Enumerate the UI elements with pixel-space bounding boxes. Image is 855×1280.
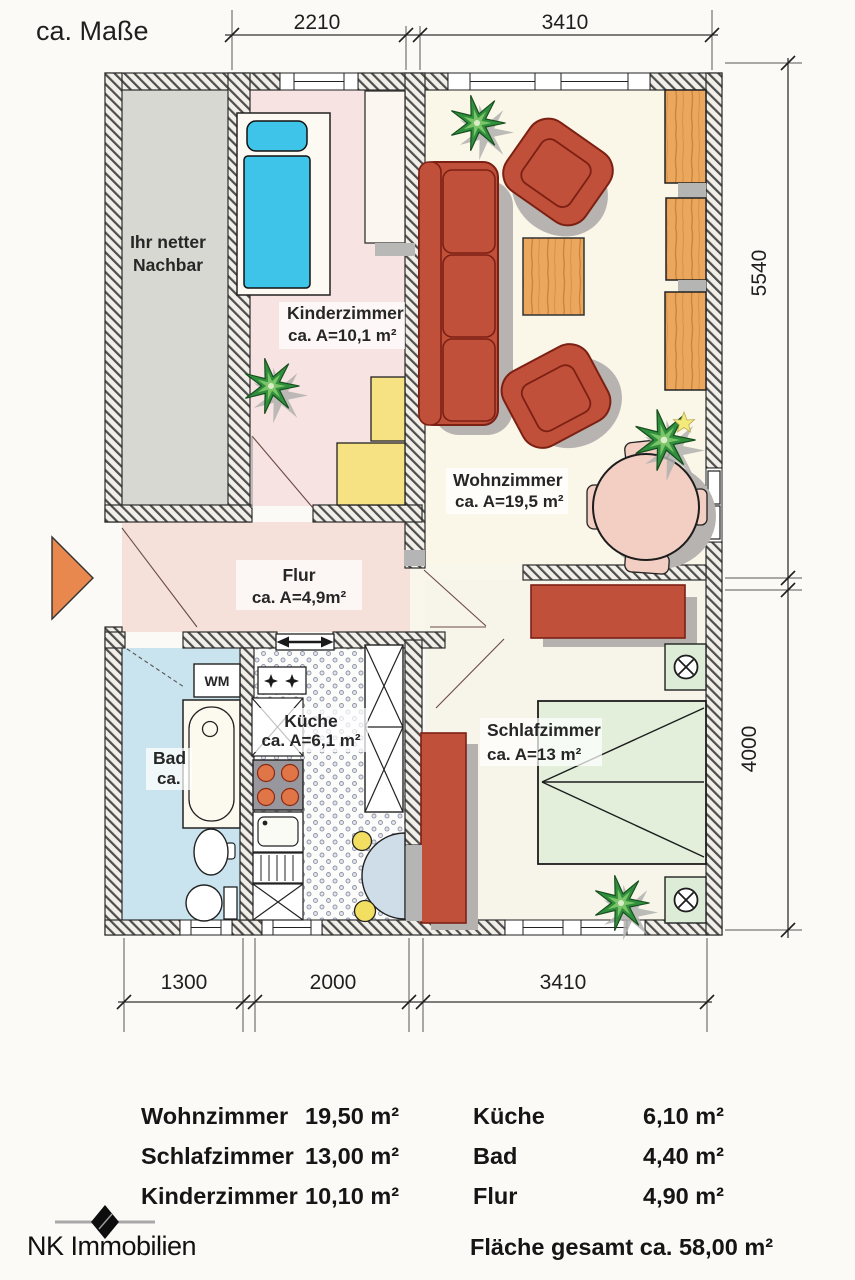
vent-box <box>258 667 306 694</box>
lamp-icon <box>675 656 698 679</box>
neighbor-room-floor <box>122 90 228 506</box>
bad-label: Bad <box>153 748 186 768</box>
door-knob <box>353 832 372 851</box>
floor-plan-drawing: 2210 3410 5540 4000 1300 2000 3410 Ihr n… <box>0 0 855 1060</box>
wardrobe <box>421 733 466 923</box>
room-name: Wohnzimmer <box>141 1096 305 1136</box>
sink <box>194 829 228 875</box>
sofa-cushion <box>443 170 495 253</box>
dim-bottom-3: 3410 <box>540 971 587 994</box>
wall-segment <box>183 632 277 648</box>
entry-door-opening <box>105 522 122 627</box>
window-kueche <box>262 920 322 935</box>
kueche-area: ca. A=6,1 m² <box>261 731 360 750</box>
sideboard <box>531 585 685 638</box>
toilet-tank <box>224 887 237 919</box>
bathtub-drain <box>203 722 218 737</box>
dim-right-1: 5540 <box>748 250 771 297</box>
dining-table <box>593 454 699 560</box>
wall-segment <box>523 565 706 580</box>
wall-shadow <box>375 243 415 256</box>
neighbor-label-line2: Nachbar <box>133 255 203 275</box>
brand-name: NK Immobilien <box>27 1231 196 1262</box>
room-name: Kinderzimmer <box>141 1176 305 1216</box>
room-area: 4,40 m² <box>643 1143 724 1169</box>
shelf-connector <box>678 183 706 198</box>
schlafzimmer-area: ca. A=13 m² <box>487 745 582 764</box>
bad-area: ca. <box>157 769 181 788</box>
schlafzimmer-label: Schlafzimmer <box>487 720 601 740</box>
yellow-cabinet <box>337 443 405 505</box>
child-bed-mattress <box>244 156 310 288</box>
wardrobe <box>365 91 405 243</box>
wall-segment <box>105 627 122 935</box>
shelf-unit <box>666 198 706 280</box>
shelf-connector <box>678 280 706 292</box>
dim-top-1: 2210 <box>294 11 341 34</box>
wohnzimmer-area: ca. A=19,5 m² <box>455 492 564 511</box>
window-kinderzimmer <box>280 73 358 90</box>
wall-segment <box>105 73 122 522</box>
area-table-left: Wohnzimmer19,50 m² Schlafzimmer13,00 m² … <box>141 1096 399 1216</box>
table-row: Schlafzimmer13,00 m² <box>141 1136 399 1176</box>
wall-segment <box>105 632 125 648</box>
room-name: Küche <box>473 1096 643 1136</box>
shelf-unit <box>665 292 706 390</box>
wall-shadow <box>406 845 422 921</box>
room-name: Bad <box>473 1136 643 1176</box>
floor-plan-page: ca. Maße <box>0 0 855 1280</box>
child-bed-pillow <box>247 121 307 151</box>
flur-label: Flur <box>282 565 315 585</box>
washing-machine-label: WM <box>205 673 230 689</box>
room-area: 10,10 m² <box>305 1183 399 1209</box>
window-wohnzimmer <box>448 73 650 90</box>
dim-top-2: 3410 <box>542 11 589 34</box>
neighbor-label-line1: Ihr netter <box>130 232 206 252</box>
wall-segment <box>706 542 722 935</box>
wall-segment <box>105 920 180 935</box>
wall-segment <box>105 505 252 522</box>
wall-segment <box>358 73 448 90</box>
table-row: Wohnzimmer19,50 m² <box>141 1096 399 1136</box>
wall-segment <box>232 920 262 935</box>
sofa-back <box>419 162 441 425</box>
sofa-cushion <box>443 255 495 337</box>
table-row: Bad4,40 m² <box>473 1136 724 1176</box>
room-name: Flur <box>473 1176 643 1216</box>
table-row: Flur4,90 m² <box>473 1176 724 1216</box>
room-area: 6,10 m² <box>643 1103 724 1129</box>
sofa-cushion <box>443 339 495 421</box>
room-area: 4,90 m² <box>643 1183 724 1209</box>
wall-segment <box>706 73 722 468</box>
kinderzimmer-label: Kinderzimmer <box>287 303 404 323</box>
dish-rack <box>253 853 303 883</box>
wall-segment <box>405 640 422 845</box>
wall-segment <box>105 73 280 90</box>
kueche-label: Küche <box>284 711 338 731</box>
shelf-unit <box>665 90 706 183</box>
total-area: Fläche gesamt ca. 58,00 m² <box>470 1234 773 1261</box>
entry-arrow-icon <box>52 537 93 619</box>
flur-area: ca. A=4,9m² <box>252 588 347 607</box>
wall-shadow <box>404 550 425 566</box>
lamp-icon <box>675 889 698 912</box>
wall-segment <box>313 505 422 522</box>
table-row: Kinderzimmer10,10 m² <box>141 1176 399 1216</box>
yellow-cabinet <box>371 377 405 441</box>
sink-faucet <box>263 821 268 826</box>
kinderzimmer-area: ca. A=10,1 m² <box>288 326 397 345</box>
area-table-right: Küche6,10 m² Bad4,40 m² Flur4,90 m² <box>473 1096 724 1216</box>
coffee-table <box>523 238 584 315</box>
room-area: 19,50 m² <box>305 1103 399 1129</box>
tall-cabinet <box>365 645 403 812</box>
table-row: Küche6,10 m² <box>473 1096 724 1136</box>
dim-bottom-2: 2000 <box>310 971 357 994</box>
cabinet-x <box>253 884 303 920</box>
dim-right-2: 4000 <box>738 726 761 773</box>
door-knob <box>355 901 376 922</box>
wohnzimmer-label: Wohnzimmer <box>453 470 563 490</box>
toilet-bowl <box>186 885 222 921</box>
room-name: Schlafzimmer <box>141 1136 305 1176</box>
dim-bottom-1: 1300 <box>161 971 208 994</box>
room-area: 13,00 m² <box>305 1143 399 1169</box>
window-bad <box>180 920 232 935</box>
wall-segment <box>240 648 254 920</box>
